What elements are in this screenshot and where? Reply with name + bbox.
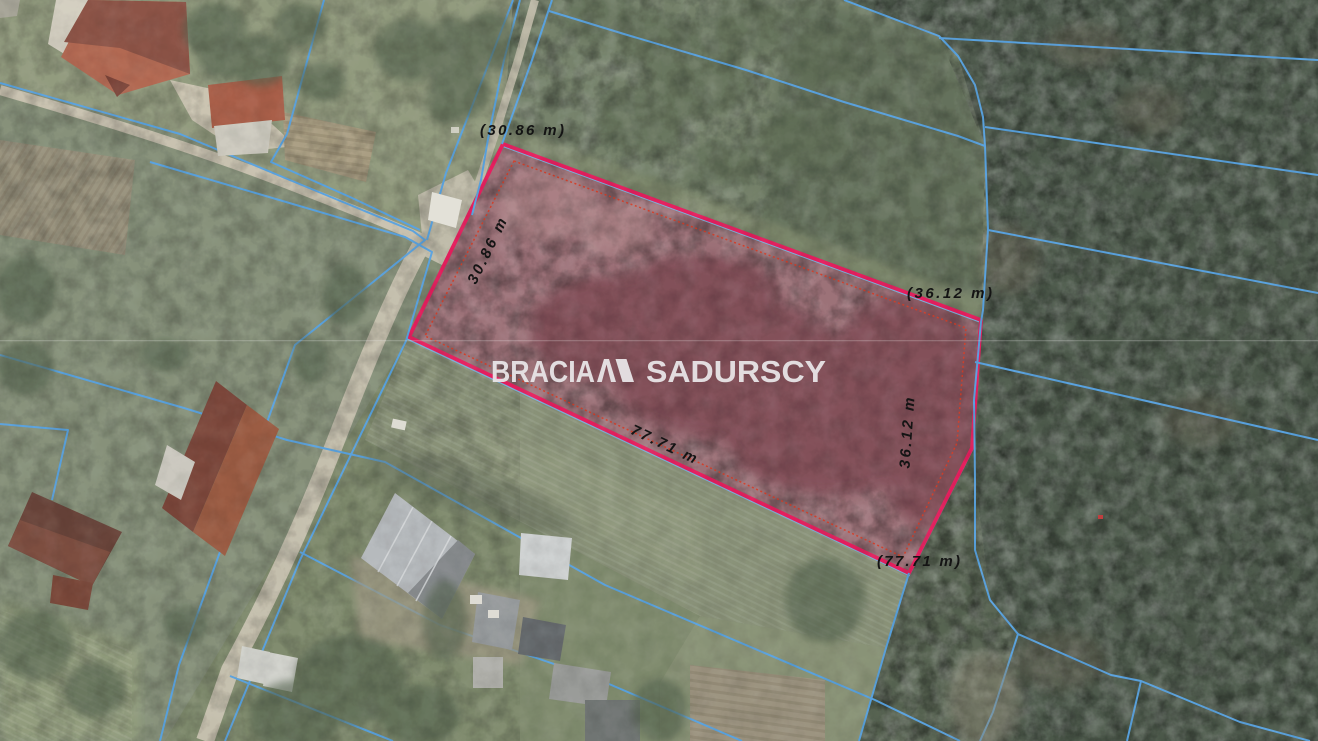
svg-text:(30.86 m): (30.86 m) bbox=[480, 122, 564, 139]
svg-text:(77.71 m): (77.71 m) bbox=[877, 553, 960, 570]
svg-text:(36.12 m): (36.12 m) bbox=[907, 285, 992, 302]
